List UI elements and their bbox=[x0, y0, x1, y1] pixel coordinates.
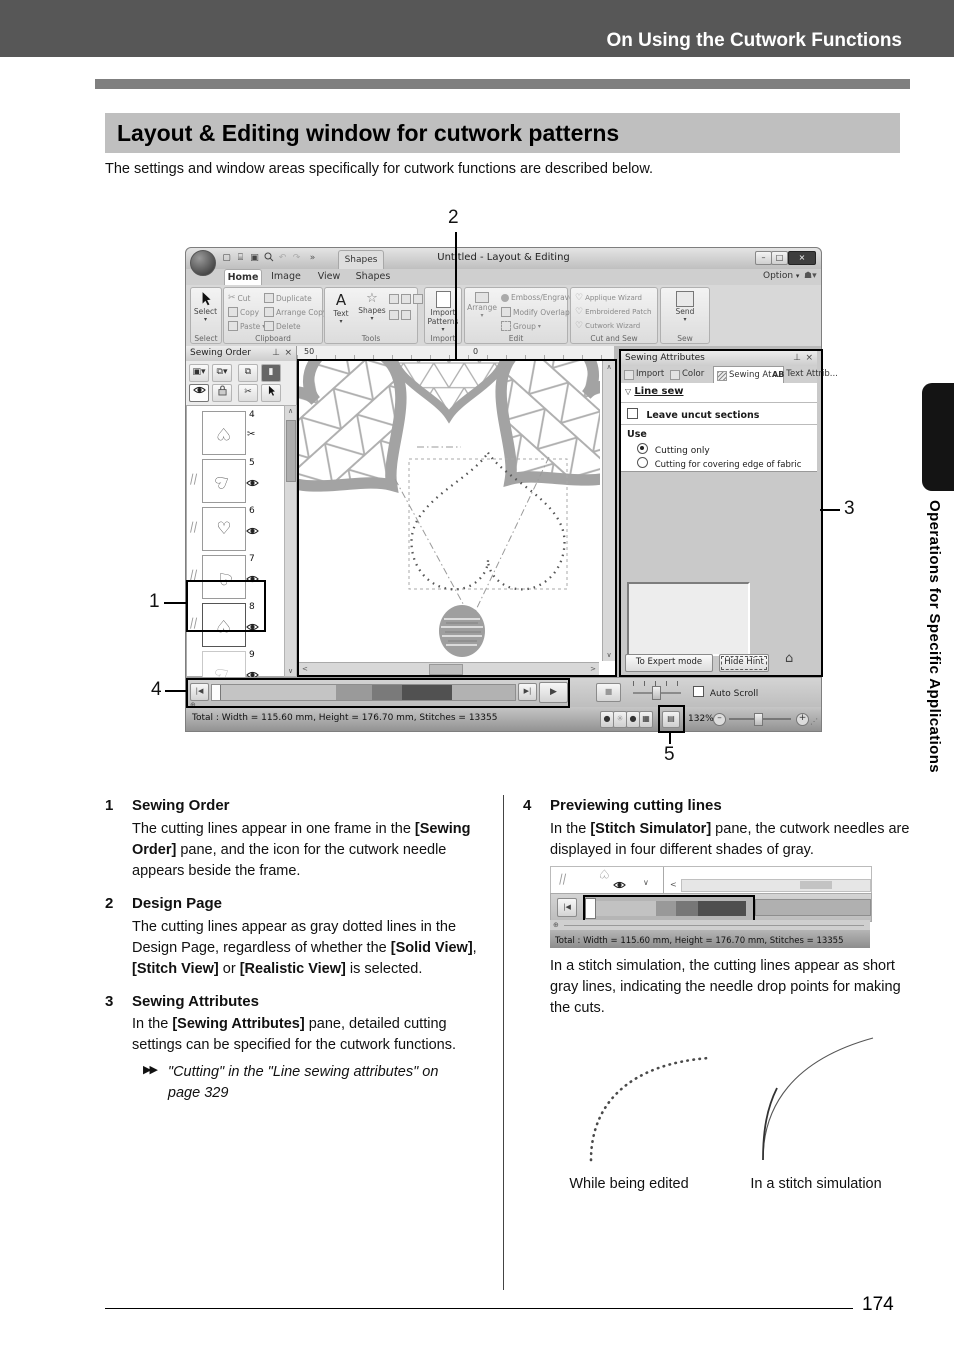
copy-button[interactable]: Copy bbox=[228, 307, 259, 317]
ribbon-group-tools: A Text▾ ☆ Shapes▾ Tools bbox=[324, 287, 418, 344]
item-1-body: The cutting lines appear in one frame in… bbox=[132, 819, 490, 882]
callout-5-box bbox=[658, 705, 685, 733]
cutting-only-radio[interactable]: Cutting only bbox=[637, 443, 710, 456]
zoom-percentage: 132% bbox=[688, 714, 714, 724]
group-button[interactable]: Group▾ bbox=[501, 321, 541, 331]
user-account-icon[interactable]: ☗▾ bbox=[804, 271, 817, 281]
scroll-down-icon[interactable]: ∨ bbox=[285, 667, 296, 675]
caption-stitch-simulation: In a stitch simulation bbox=[731, 1174, 901, 1195]
intro-text: The settings and window areas specifical… bbox=[105, 161, 653, 177]
callout-2-label: 2 bbox=[448, 207, 459, 229]
chapter-side-tab bbox=[922, 383, 954, 491]
thread-color-icon bbox=[670, 370, 680, 380]
zoom-out-icon[interactable] bbox=[401, 294, 411, 304]
item-4-body: In the [Stitch Simulator] pane, the cutw… bbox=[550, 819, 915, 861]
scissors-icon: ✂ bbox=[247, 429, 255, 440]
cutwork-needle-icon: || bbox=[189, 520, 199, 533]
sewing-order-list: ♡ 4 ✂ || ♡ 5 || ♡ 6 bbox=[186, 405, 286, 677]
lock-button[interactable] bbox=[212, 384, 232, 402]
mini-callout-box bbox=[583, 895, 755, 922]
double-arrow-icon: ▶▶ bbox=[143, 1062, 156, 1104]
hint-house-icon[interactable]: ⌂ bbox=[785, 651, 793, 666]
ribbon-group-edit: Arrange▾ Emboss/Engrave▾ Modify Overlap▾… bbox=[464, 287, 568, 344]
tab-color[interactable]: Color bbox=[667, 366, 707, 383]
caption-while-editing: While being edited bbox=[549, 1174, 709, 1195]
arrange-icon bbox=[475, 292, 489, 303]
send-machine-icon bbox=[676, 291, 694, 307]
sewing-attributes-pane: Sewing Attributes ⊥ × Import Color Sewin… bbox=[619, 349, 823, 677]
callout-5-label: 5 bbox=[664, 744, 675, 766]
callout-4-label: 4 bbox=[151, 679, 162, 701]
select-cursor-button[interactable] bbox=[261, 384, 281, 402]
open-file-icon[interactable]: ⌸ bbox=[234, 252, 247, 265]
accent-bar bbox=[95, 79, 910, 89]
hint-preview-box bbox=[627, 582, 750, 656]
callout-4-line bbox=[165, 690, 186, 692]
save-icon[interactable]: ▣ bbox=[248, 252, 261, 265]
footer-rule bbox=[105, 1308, 853, 1309]
scroll-down-icon[interactable]: ∨ bbox=[603, 651, 615, 659]
callout-1-label: 1 bbox=[149, 591, 160, 613]
status-total-text: Total : Width = 115.60 mm, Height = 176.… bbox=[555, 935, 844, 947]
hide-hint-button[interactable]: Hide Hint bbox=[719, 654, 769, 672]
thread-spool-button[interactable]: ▮ bbox=[261, 364, 281, 382]
tab-text-attributes[interactable]: ABText Attrib... bbox=[769, 366, 841, 383]
needle-shade-2 bbox=[656, 901, 676, 916]
chevron-down-icon: ▾ bbox=[441, 326, 444, 333]
lock-icon bbox=[218, 385, 227, 396]
order-frame-5[interactable]: || ♡ 5 bbox=[187, 457, 285, 505]
status-total-text: Total : Width = 115.60 mm, Height = 176.… bbox=[192, 713, 497, 723]
ribbon-group-cut-and-sew: ♡Applique Wizard ♡Embroidered Patch ♡Cut… bbox=[570, 287, 658, 344]
mini-strip: ⊕ bbox=[550, 920, 870, 930]
solid-view-button[interactable]: ● bbox=[600, 711, 614, 728]
cursor-arrow-icon bbox=[267, 385, 276, 397]
scroll-up-icon[interactable]: ∧ bbox=[285, 407, 296, 415]
copy-frame-button[interactable]: ⧉ bbox=[238, 364, 258, 382]
scrollbar-thumb[interactable] bbox=[429, 664, 463, 675]
redo-icon[interactable]: ↷ bbox=[290, 252, 303, 265]
mini-scrollbar bbox=[681, 879, 871, 892]
radio-icon[interactable] bbox=[637, 457, 648, 468]
radio-selected-icon[interactable] bbox=[637, 443, 648, 454]
order-list-scrollbar[interactable]: ∧ ∨ bbox=[284, 405, 297, 677]
chevron-down-icon: ▾ bbox=[339, 318, 342, 325]
zoom-in-icon[interactable] bbox=[389, 294, 399, 304]
measure-icon[interactable] bbox=[401, 310, 411, 320]
use-label: Use bbox=[627, 429, 647, 440]
line-sew-section: ▽ Line sew Leave uncut sections Use Cutt… bbox=[621, 383, 817, 472]
more-commands-icon[interactable]: » bbox=[306, 252, 319, 265]
item-3-heading: 3 Sewing Attributes bbox=[105, 991, 490, 1013]
shapes-star-icon: ☆ bbox=[366, 291, 378, 306]
maximize-button[interactable]: □ bbox=[771, 251, 788, 265]
item-2-body: The cutting lines appear as gray dotted … bbox=[132, 917, 494, 980]
ribbon-group-select: Select▾ Select bbox=[190, 287, 222, 344]
zoom-buttons bbox=[389, 294, 423, 304]
item-2-heading: 2 Design Page bbox=[105, 893, 490, 915]
close-icon[interactable]: × bbox=[284, 348, 292, 359]
order-frame-6[interactable]: || ♡ 6 bbox=[187, 505, 285, 553]
manual-page: On Using the Cutwork Functions Layout & … bbox=[0, 0, 954, 1348]
mini-simulator-row: |◀ bbox=[550, 893, 872, 922]
cursor-arrow-icon bbox=[200, 291, 212, 307]
modify-overlap-icon bbox=[501, 307, 511, 317]
mini-status-bar: Total : Width = 115.60 mm, Height = 176.… bbox=[550, 930, 870, 948]
page-header-title: On Using the Cutwork Functions bbox=[606, 30, 902, 52]
zoom-in-button[interactable]: + bbox=[796, 713, 809, 726]
item-1-heading: 1 Sewing Order bbox=[105, 795, 490, 817]
pin-icon[interactable]: ⊥ bbox=[793, 353, 801, 364]
heart-shape-icon: ♡ bbox=[216, 519, 231, 539]
undo-icon[interactable]: ↶ bbox=[276, 252, 289, 265]
callout-1-box bbox=[186, 580, 266, 632]
cutwork-wizard-button[interactable]: ♡Cutwork Wizard bbox=[575, 321, 640, 331]
eye-icon[interactable] bbox=[246, 520, 259, 539]
pin-icon[interactable]: ⊥ bbox=[272, 348, 280, 359]
stop-button[interactable]: ■ bbox=[596, 683, 621, 702]
cutwork-needle-icon: || bbox=[557, 871, 568, 887]
scroll-right-icon[interactable]: > bbox=[590, 665, 596, 673]
applique-wizard-button[interactable]: ♡Applique Wizard bbox=[575, 293, 642, 303]
tab-import[interactable]: Import bbox=[621, 366, 667, 383]
zoom-out-button[interactable]: – bbox=[713, 713, 726, 726]
auto-scroll-checkbox[interactable]: Auto Scroll bbox=[693, 686, 758, 699]
text-a-icon: A bbox=[336, 291, 346, 309]
stitch-view-button[interactable]: ✳ bbox=[613, 711, 627, 728]
shapes-tool-button[interactable]: ☆ Shapes▾ bbox=[357, 291, 387, 322]
ribbon-group-sew: Send▾ Sew bbox=[660, 287, 710, 344]
import-document-icon bbox=[436, 291, 451, 308]
cut-frame-button[interactable]: ✂ bbox=[238, 384, 258, 402]
chevron-down-icon: ▾ bbox=[204, 316, 207, 323]
design-page-canvas[interactable]: ∧ ∨ < > bbox=[297, 359, 617, 677]
heart-outline-icon: ♡ bbox=[575, 307, 583, 317]
scroll-down-icon: ∨ bbox=[643, 877, 649, 889]
line-sew-header[interactable]: ▽ Line sew bbox=[625, 386, 684, 397]
hoop-position-icon: ⊕ bbox=[553, 920, 559, 930]
cross-reference[interactable]: ▶▶ "Cutting" in the "Line sewing attribu… bbox=[143, 1062, 490, 1104]
speed-slider-handle[interactable] bbox=[652, 686, 661, 700]
cutting-line-illustrations bbox=[523, 1030, 915, 1168]
zoom-select-icon[interactable] bbox=[413, 294, 423, 304]
callout-3-line bbox=[820, 509, 840, 511]
item-4-body-2: In a stitch simulation, the cutting line… bbox=[550, 956, 915, 1019]
option-menu[interactable]: Option ▾ bbox=[763, 271, 799, 281]
leave-uncut-checkbox-row[interactable]: Leave uncut sections bbox=[627, 408, 759, 421]
divider bbox=[663, 867, 664, 894]
design-page-artwork bbox=[299, 361, 600, 661]
ribbon: Select▾ Select ✂Cut Copy Paste▾ Duplicat… bbox=[186, 285, 821, 347]
layout-editing-window: Untitled - Layout & Editing ▢ ⌸ ▣ ↶ ↷ » … bbox=[185, 247, 822, 732]
checkbox-icon[interactable] bbox=[693, 686, 704, 697]
to-expert-mode-button[interactable]: To Expert mode bbox=[625, 654, 713, 672]
dotted-arc-while-editing bbox=[561, 1034, 713, 1162]
ribbon-group-clipboard: ✂Cut Copy Paste▾ Duplicate Arrange Copy▾… bbox=[223, 287, 323, 344]
callout-3-label: 3 bbox=[844, 498, 855, 520]
scrollbar-thumb bbox=[800, 881, 832, 889]
checkbox-icon[interactable] bbox=[627, 408, 638, 419]
realistic-view-button[interactable]: ● bbox=[626, 711, 640, 728]
pan-measure-buttons bbox=[389, 310, 411, 320]
zoom-tool-icon[interactable] bbox=[262, 252, 275, 265]
divider bbox=[564, 925, 864, 926]
divider bbox=[621, 402, 817, 403]
close-icon[interactable]: × bbox=[805, 353, 813, 364]
simulator-slider-handle bbox=[585, 898, 596, 919]
stitch-pattern-icon bbox=[717, 371, 727, 381]
window-title-bar[interactable]: Untitled - Layout & Editing ▢ ⌸ ▣ ↶ ↷ » … bbox=[186, 248, 821, 269]
needle-shade-3 bbox=[676, 901, 698, 916]
page-header-band: On Using the Cutwork Functions bbox=[0, 0, 954, 57]
chevron-down-icon: ▾ bbox=[683, 316, 686, 323]
heart-shape-icon: ♡ bbox=[216, 423, 231, 443]
page-number: 174 bbox=[862, 1294, 894, 1316]
show-hide-eye-button[interactable] bbox=[189, 384, 209, 402]
delete-icon bbox=[264, 321, 274, 331]
embroidered-patch-button[interactable]: ♡Embroidered Patch bbox=[575, 307, 651, 317]
left-column: 1 Sewing Order The cutting lines appear … bbox=[105, 795, 490, 1104]
import-grid-icon bbox=[624, 370, 634, 380]
paste-button[interactable]: Paste▾ bbox=[228, 321, 265, 331]
tab-image[interactable]: Image bbox=[266, 269, 306, 285]
divider bbox=[621, 424, 817, 425]
send-button[interactable]: Send▾ bbox=[670, 291, 700, 323]
chevron-down-icon: ▾ bbox=[796, 272, 800, 280]
application-menu-button[interactable] bbox=[190, 250, 216, 276]
scroll-up-icon[interactable]: ∧ bbox=[603, 363, 615, 371]
chevron-down-icon: ▾ bbox=[538, 323, 541, 330]
tab-view[interactable]: View bbox=[312, 269, 346, 285]
scissors-icon: ✂ bbox=[244, 387, 252, 397]
right-column: 4 Previewing cutting lines In the [Stitc… bbox=[523, 795, 915, 1198]
frame-select-button[interactable]: ▣▾ bbox=[189, 364, 209, 382]
arrange-copy-icon bbox=[264, 307, 274, 317]
mini-order-pane-bottom: || ♡ ∨ < bbox=[550, 866, 872, 895]
group-icon bbox=[501, 321, 511, 331]
arrange-copy-button[interactable]: Arrange Copy▾ bbox=[264, 307, 332, 317]
cutting-covering-radio[interactable]: Cutting for covering edge of fabric bbox=[637, 457, 801, 470]
callout-1-line bbox=[164, 602, 186, 604]
item-3-body: In the [Sewing Attributes] pane, detaile… bbox=[132, 1014, 494, 1056]
scrollbar-thumb[interactable] bbox=[286, 420, 296, 482]
canvas-horizontal-scrollbar[interactable]: < > bbox=[299, 662, 599, 675]
design-property-button[interactable]: ▦ bbox=[639, 711, 653, 728]
section-title-block: Layout & Editing window for cutwork patt… bbox=[105, 113, 900, 153]
canvas-vertical-scrollbar[interactable]: ∧ ∨ bbox=[602, 361, 615, 661]
heart-shape-icon: ♡ bbox=[212, 469, 237, 492]
column-divider bbox=[503, 795, 504, 1290]
triangle-collapse-icon: ▽ bbox=[625, 387, 631, 396]
needle-shade-4 bbox=[698, 901, 746, 916]
callout-2-line bbox=[455, 232, 457, 359]
status-bar: Total : Width = 115.60 mm, Height = 176.… bbox=[186, 707, 821, 731]
arrange-button[interactable]: Arrange▾ bbox=[468, 292, 496, 319]
heart-outline-icon: ♡ bbox=[575, 293, 583, 303]
go-to-start-button: |◀ bbox=[557, 898, 577, 917]
chapter-side-text: Operations for Specific Applications bbox=[917, 500, 943, 845]
zoom-slider-handle[interactable] bbox=[754, 713, 763, 726]
pan-hand-icon[interactable] bbox=[389, 310, 399, 320]
eye-icon[interactable] bbox=[246, 472, 259, 491]
select-button[interactable]: Select▾ bbox=[192, 291, 219, 323]
reorder-frames-button[interactable]: ⧉▾ bbox=[212, 364, 232, 382]
minimize-button[interactable]: – bbox=[755, 251, 772, 265]
scroll-left-icon: < bbox=[670, 879, 677, 891]
item-4-heading: 4 Previewing cutting lines bbox=[523, 795, 915, 817]
new-document-icon[interactable]: ▢ bbox=[220, 252, 233, 265]
mini-screenshot: || ♡ ∨ < |◀ bbox=[550, 866, 870, 948]
cutwork-needle-icon: || bbox=[189, 472, 199, 485]
solid-arc-simulation bbox=[751, 1030, 881, 1162]
eye-icon bbox=[193, 386, 206, 394]
emboss-icon bbox=[501, 294, 509, 302]
attributes-tab-row: Import Color Sewing At... ABText Attrib.… bbox=[621, 366, 817, 384]
ribbon-tab-row: Home Image View Shapes Option ▾ ☗▾ bbox=[186, 269, 821, 286]
paste-icon bbox=[228, 321, 238, 331]
callout-4-box bbox=[186, 678, 570, 708]
copy-icon bbox=[228, 307, 238, 317]
heart-shape-icon: ♡ bbox=[599, 864, 610, 881]
duplicate-button[interactable]: Duplicate bbox=[264, 293, 312, 303]
delete-button[interactable]: Delete bbox=[264, 321, 301, 331]
scroll-left-icon[interactable]: < bbox=[302, 665, 308, 673]
heart-outline-icon: ♡ bbox=[575, 321, 583, 331]
chevron-down-icon: ▾ bbox=[480, 312, 483, 319]
chevron-down-icon: ▾ bbox=[370, 315, 373, 322]
resize-grip-icon[interactable]: ⋰ bbox=[810, 717, 818, 726]
contextual-tab-group: Shapes bbox=[338, 250, 384, 269]
needle-shade-1 bbox=[596, 901, 656, 916]
close-button[interactable]: × bbox=[788, 251, 816, 265]
tab-shapes[interactable]: Shapes bbox=[352, 269, 394, 285]
illustration-captions: While being edited In a stitch simulatio… bbox=[523, 1174, 915, 1198]
tab-home[interactable]: Home bbox=[224, 269, 262, 286]
section-title: Layout & Editing window for cutwork patt… bbox=[117, 120, 619, 147]
text-tool-button[interactable]: A Text▾ bbox=[328, 291, 354, 325]
emboss-engrave-button[interactable]: Emboss/Engrave▾ bbox=[501, 293, 579, 302]
scissors-icon: ✂ bbox=[228, 293, 236, 303]
sewing-order-header: Sewing Order ⊥ × bbox=[186, 346, 296, 361]
order-frame-4[interactable]: ♡ 4 ✂ bbox=[187, 409, 285, 457]
modify-overlap-button[interactable]: Modify Overlap▾ bbox=[501, 307, 575, 317]
sewing-attributes-header: Sewing Attributes ⊥ × bbox=[621, 351, 817, 366]
cut-button[interactable]: ✂Cut bbox=[228, 293, 250, 303]
duplicate-icon bbox=[264, 293, 274, 303]
simulator-track-rest bbox=[755, 899, 871, 916]
